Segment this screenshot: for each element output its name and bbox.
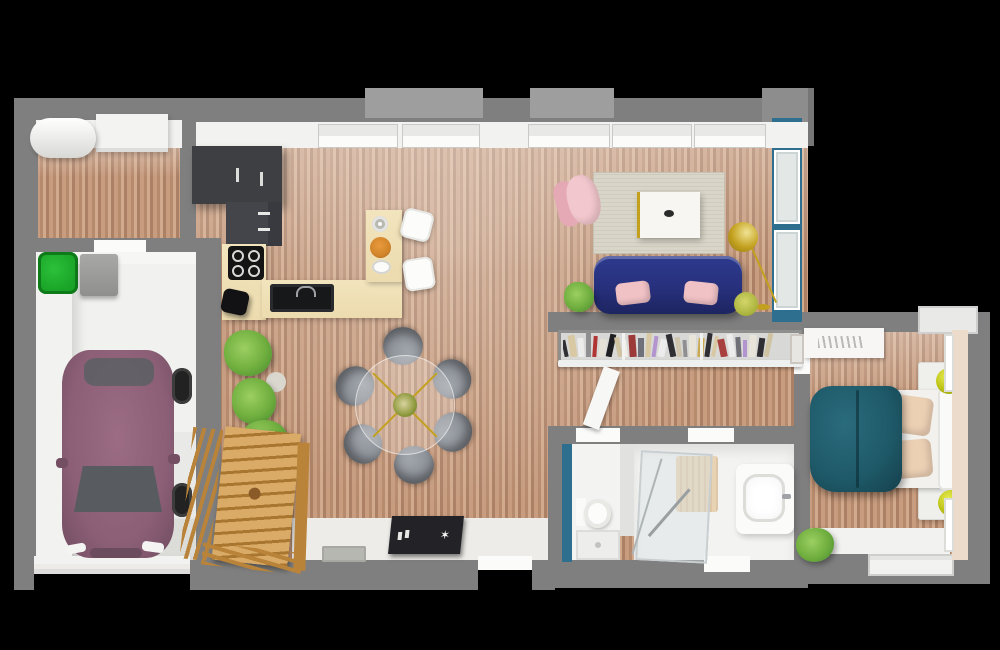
window-box-2 <box>530 88 614 118</box>
floor-lamp-shade <box>728 222 758 252</box>
bookshelf-wall <box>548 312 808 332</box>
entry-door-sill <box>478 556 532 570</box>
sofa-cushion-2 <box>683 280 719 305</box>
walk-in-shower <box>635 450 713 564</box>
burner-3 <box>232 265 244 277</box>
sofa <box>594 256 742 314</box>
bookshelf-divider-1 <box>622 333 625 361</box>
window-sill-2 <box>402 124 480 148</box>
bedroom-window-1 <box>944 334 954 392</box>
burner-2 <box>248 250 260 262</box>
bedroom-top-window-box <box>918 306 978 334</box>
island-cup <box>372 216 388 232</box>
kitchen-tall-cabinet <box>226 202 282 246</box>
sofa-cushion-1 <box>615 280 651 306</box>
garage-cabinet <box>80 254 118 296</box>
car-mirror-left <box>56 458 68 468</box>
garage-door-recess <box>34 574 190 590</box>
car-grille <box>90 548 142 558</box>
table-centerpiece <box>393 393 417 417</box>
floor-lamp-base <box>756 304 770 310</box>
window-sill-3 <box>528 124 610 148</box>
bookshelf-divider-2 <box>700 333 703 361</box>
window-box-1 <box>365 88 483 118</box>
shower-tray <box>576 530 620 560</box>
bathroom-door-sill <box>704 556 750 572</box>
vanity-sink <box>736 464 794 534</box>
toilet-bowl <box>584 499 611 528</box>
bedroom-right-face <box>952 330 968 560</box>
bathroom-opening-sill <box>688 428 734 442</box>
desk-sketch <box>818 336 864 348</box>
wc-bathroom-wall <box>620 444 634 536</box>
bed-duvet <box>810 386 902 492</box>
book <box>628 335 637 357</box>
bookshelf-books <box>563 333 797 357</box>
bedroom-window-2 <box>944 498 954 552</box>
book <box>689 335 696 357</box>
book <box>743 340 747 357</box>
burner-1 <box>232 250 244 262</box>
kitchen-plant-2 <box>232 378 276 424</box>
oven-handle <box>258 212 270 215</box>
sink-basin <box>743 474 785 522</box>
shower-head-column <box>648 488 691 537</box>
book <box>726 334 735 357</box>
black-pot <box>220 288 250 317</box>
vanity-faucet <box>782 494 791 499</box>
bottom-wall-mid <box>555 560 808 588</box>
book <box>645 333 652 357</box>
wc-blue-face <box>562 430 572 562</box>
living-window-1 <box>774 150 800 224</box>
duvet-fold <box>856 390 859 488</box>
console-table: ✶ <box>388 516 464 554</box>
book <box>748 335 757 357</box>
bedroom-wall-art <box>790 334 804 364</box>
coffee-table-decor <box>664 210 674 217</box>
burner-4 <box>248 265 260 277</box>
floor-plan-canvas: ✶ <box>0 0 1000 650</box>
book <box>586 333 591 357</box>
sink-faucet <box>296 286 316 297</box>
console-star: ✶ <box>435 526 455 544</box>
book <box>592 336 597 357</box>
air-duct <box>30 118 96 158</box>
book <box>638 338 644 357</box>
car <box>56 350 180 560</box>
cabinet-handle <box>236 168 239 182</box>
car-wheel-front <box>172 368 192 404</box>
bookshelf-rail <box>558 360 802 367</box>
island-plate <box>372 260 391 274</box>
doormat <box>322 546 366 562</box>
bookshelf <box>558 330 802 364</box>
dining-table <box>355 355 455 455</box>
utility-cabinet <box>96 114 168 152</box>
recycling-bin <box>38 252 78 294</box>
shower-drain <box>595 542 601 548</box>
window-sill-5 <box>694 124 766 148</box>
living-window-2 <box>774 230 800 310</box>
book <box>717 338 728 357</box>
book <box>735 337 741 357</box>
bedroom-bottom-window <box>868 554 954 576</box>
left-wall <box>14 98 38 575</box>
book <box>568 335 578 357</box>
car-windshield <box>74 466 162 512</box>
book <box>764 333 774 357</box>
bar-stool-2 <box>402 256 437 292</box>
right-wall <box>966 312 990 568</box>
bedroom-desk <box>804 328 884 358</box>
fruit-bowl <box>370 237 391 258</box>
window-sill-4 <box>612 124 692 148</box>
car-mirror-right <box>168 454 180 464</box>
cooktop <box>228 246 264 280</box>
kitchen-plant-1 <box>224 330 272 376</box>
living-plant-right <box>734 292 758 316</box>
window-sill-1 <box>318 124 398 148</box>
book <box>682 340 687 357</box>
coffee-table <box>637 192 700 238</box>
book <box>577 338 584 357</box>
entry-door-recess <box>478 570 532 590</box>
staircase <box>179 423 337 577</box>
living-plant-left <box>564 282 594 312</box>
utility-floor <box>36 146 182 240</box>
car-rear-window <box>84 358 154 386</box>
console-marks <box>397 532 402 540</box>
